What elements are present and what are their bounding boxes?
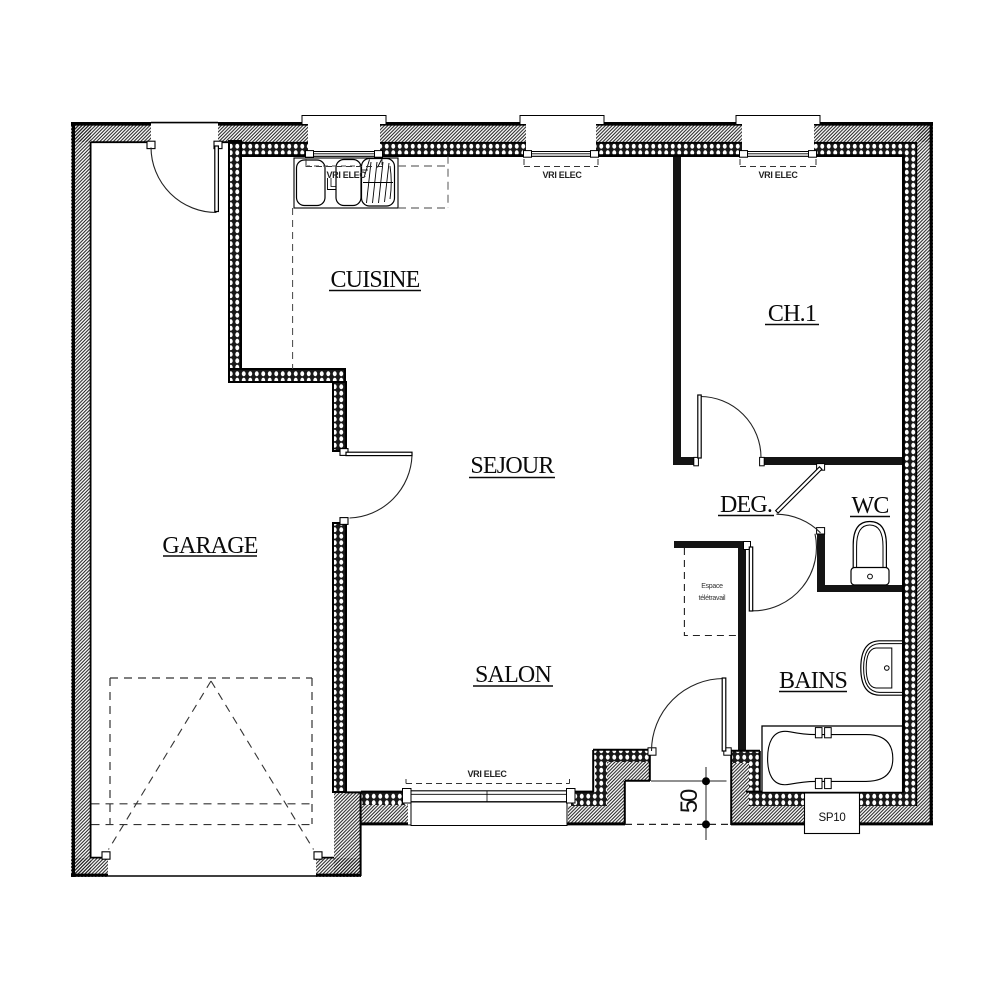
svg-text:VRI ELEC: VRI ELEC — [542, 170, 582, 180]
svg-text:télétravail: télétravail — [699, 595, 726, 602]
svg-text:VRI ELEC: VRI ELEC — [326, 170, 366, 180]
svg-text:BAINS: BAINS — [779, 668, 847, 694]
svg-text:DEG.: DEG. — [720, 492, 772, 518]
svg-text:CH.1: CH.1 — [768, 301, 816, 327]
svg-text:CUISINE: CUISINE — [330, 267, 419, 293]
svg-text:Espace: Espace — [701, 583, 723, 590]
svg-text:GARAGE: GARAGE — [162, 533, 257, 559]
svg-text:VRI ELEC: VRI ELEC — [758, 170, 798, 180]
svg-text:SALON: SALON — [475, 662, 551, 688]
svg-text:SP10: SP10 — [819, 812, 846, 824]
svg-text:WC: WC — [851, 493, 888, 519]
svg-text:VRI ELEC: VRI ELEC — [467, 769, 507, 779]
svg-text:50: 50 — [676, 789, 703, 813]
svg-text:SEJOUR: SEJOUR — [470, 453, 554, 479]
